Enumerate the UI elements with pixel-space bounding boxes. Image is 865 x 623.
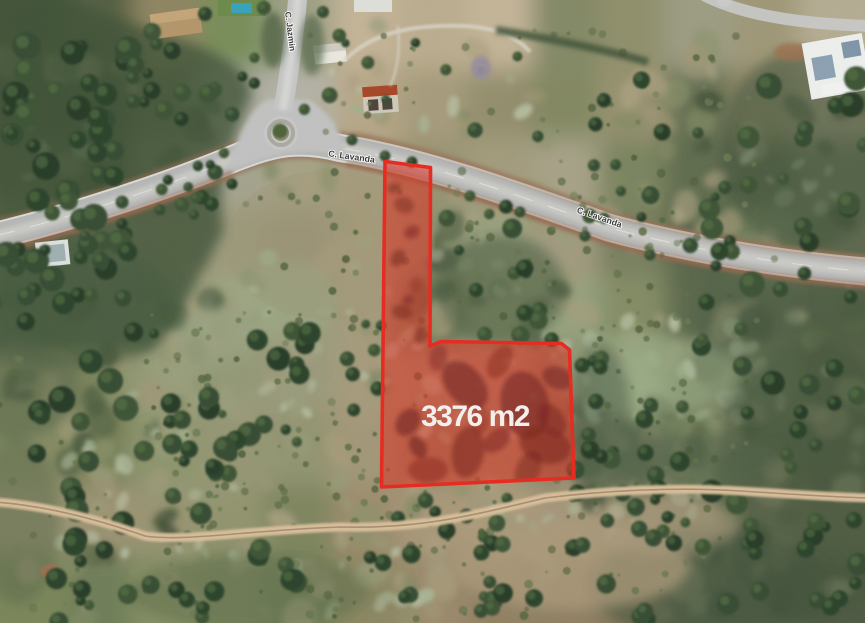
svg-text:3376 m2: 3376 m2 [421, 400, 530, 433]
